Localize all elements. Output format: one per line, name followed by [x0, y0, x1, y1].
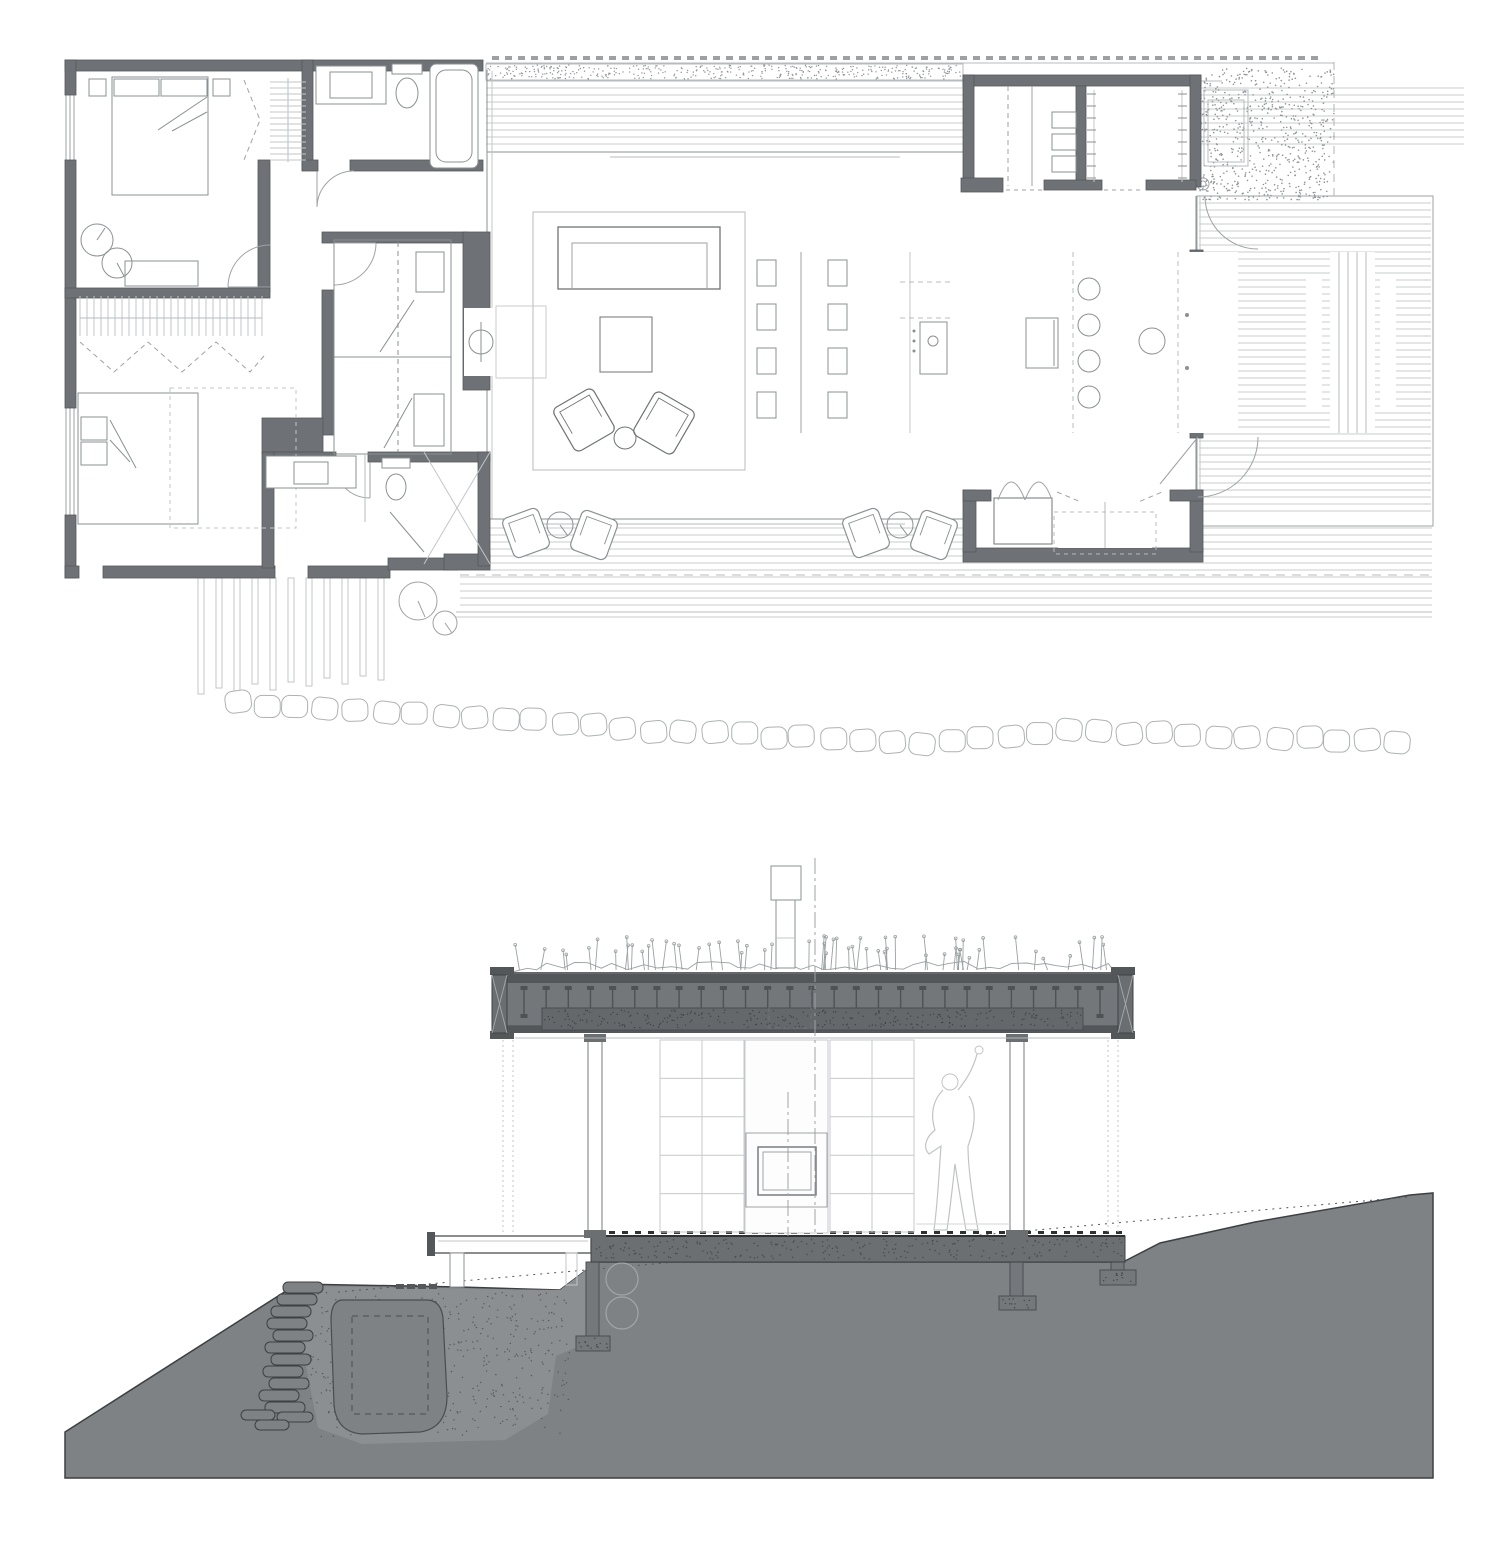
- insulation-hatch: [558, 1011, 559, 1012]
- slab-hatch: [932, 1240, 934, 1242]
- backfill-dots: [512, 1316, 513, 1317]
- gravel-dots: [1313, 105, 1315, 107]
- gravel-dots: [1287, 138, 1289, 140]
- slab-ticks: [947, 1231, 953, 1234]
- stone: [1205, 726, 1233, 750]
- slab-hatch: [837, 1251, 839, 1253]
- gravel-dots: [615, 72, 616, 73]
- insulation-hatch: [1034, 1017, 1035, 1018]
- gravel-dots: [1267, 194, 1269, 196]
- armchair: [552, 387, 617, 453]
- roof-edge-ticks: [596, 56, 603, 60]
- gravel-dots: [944, 71, 945, 72]
- slab-hatch: [884, 1248, 886, 1250]
- insulation-hatch: [691, 1020, 692, 1021]
- gravel-dots: [1258, 105, 1260, 107]
- stone: [939, 730, 965, 752]
- gravel-dots: [1280, 80, 1282, 82]
- gravel-dots: [574, 73, 575, 74]
- slab-hatch: [1079, 1239, 1081, 1241]
- backfill-dots: [561, 1326, 562, 1327]
- gravel-dots: [696, 66, 697, 67]
- boardwalk: [378, 578, 384, 680]
- gravel-dots: [1251, 124, 1253, 126]
- gravel-dots: [796, 68, 797, 69]
- gravel-dots: [497, 66, 498, 67]
- insulation-hatch: [965, 1015, 966, 1016]
- insulation-hatch: [1061, 1010, 1062, 1011]
- insulation-hatch: [895, 1016, 896, 1017]
- gravel-dots: [645, 65, 646, 66]
- wing-interior: [76, 71, 480, 568]
- gravel-dots: [874, 65, 875, 66]
- slab-hatch: [648, 1256, 650, 1258]
- gravel-dots: [1308, 140, 1310, 142]
- backfill-dots: [475, 1402, 476, 1403]
- backfill-dots: [503, 1394, 504, 1395]
- footing-dots: [1105, 1277, 1106, 1278]
- slab-ticks: [648, 1231, 654, 1234]
- gravel-dots: [634, 78, 635, 79]
- gravel-dots: [1224, 72, 1226, 74]
- slab-ticks: [973, 1231, 979, 1234]
- gravel-dots: [535, 76, 536, 77]
- sofa: [558, 227, 720, 289]
- plant-stem: [541, 949, 545, 970]
- gravel-dots: [751, 65, 752, 66]
- plant-stem: [983, 938, 986, 970]
- insulation-hatch: [1080, 1015, 1081, 1016]
- slab-hatch: [943, 1245, 945, 1247]
- footing-dots: [1014, 1307, 1015, 1308]
- gravel-dots: [696, 70, 697, 71]
- gravel-dots: [1255, 99, 1257, 101]
- slab-hatch: [596, 1248, 598, 1250]
- insulation-hatch: [878, 1010, 879, 1011]
- gravel-dots: [703, 70, 704, 71]
- gravel-dots: [787, 75, 788, 76]
- insulation-hatch: [822, 1011, 823, 1012]
- plant-stem: [963, 940, 964, 970]
- gravel-dots: [763, 64, 764, 65]
- gravel-dots: [811, 77, 812, 78]
- gravel-dots: [544, 67, 545, 68]
- backfill-dots: [516, 1377, 517, 1378]
- slab-hatch: [686, 1247, 688, 1249]
- gravel-dots: [923, 74, 924, 75]
- gravel-dots: [949, 68, 950, 69]
- backfill-dots: [326, 1292, 327, 1293]
- slab-hatch: [717, 1251, 719, 1253]
- gravel-dots: [1286, 116, 1288, 118]
- slab-hatch: [670, 1257, 672, 1259]
- insulation-hatch: [650, 1024, 651, 1025]
- backfill-dots: [438, 1293, 439, 1294]
- gravel-dots: [1240, 83, 1242, 85]
- backfill-dots: [531, 1360, 532, 1361]
- insulation-hatch: [897, 1019, 898, 1020]
- backfill-dots: [483, 1303, 484, 1304]
- slab-hatch: [660, 1241, 662, 1243]
- insulation-hatch: [657, 1013, 658, 1014]
- gravel-dots: [902, 73, 903, 74]
- gravel-dots: [1255, 142, 1257, 144]
- gravel-dots: [861, 75, 862, 76]
- backfill-dots: [452, 1403, 453, 1404]
- kitchen-island: [1021, 252, 1081, 433]
- gravel-dots: [1309, 147, 1311, 149]
- gravel-dots: [1206, 190, 1208, 192]
- gravel-dots: [721, 71, 722, 72]
- insulation-hatch: [743, 1024, 744, 1025]
- slab-hatch: [611, 1246, 613, 1248]
- gravel-dots: [605, 75, 606, 76]
- gravel-dots: [1278, 100, 1280, 102]
- gravel-dots: [1318, 164, 1320, 166]
- joist-plate: [521, 986, 528, 990]
- gravel-dots: [1299, 158, 1301, 160]
- backfill-dots: [510, 1343, 511, 1344]
- insulation-hatch: [799, 1025, 800, 1026]
- slab-hatch: [1022, 1247, 1024, 1249]
- stone: [224, 689, 253, 714]
- slab-ticks: [622, 1231, 628, 1234]
- insulation-hatch: [586, 1020, 587, 1021]
- slab-hatch: [989, 1257, 991, 1259]
- gravel-dots: [886, 74, 887, 75]
- plant-stem: [738, 941, 741, 970]
- backfill-dots: [475, 1298, 476, 1299]
- gravel-dots: [837, 72, 838, 73]
- backfill-dots: [355, 1296, 356, 1297]
- gravel-dots: [1276, 176, 1278, 178]
- gravel-dots: [847, 72, 848, 73]
- gravel-dots: [1257, 70, 1259, 72]
- gravel-dots: [557, 72, 558, 73]
- footing-dots: [1028, 1300, 1029, 1301]
- gravel-dots: [1321, 140, 1323, 142]
- stone: [1233, 725, 1261, 750]
- stone: [1353, 727, 1381, 752]
- insulation-hatch: [1025, 1012, 1026, 1013]
- insulation-hatch: [639, 1027, 640, 1028]
- slab-hatch: [949, 1249, 951, 1251]
- gravel-dots: [648, 66, 649, 67]
- dining-chair: [828, 348, 847, 374]
- gravel-dots: [690, 76, 691, 77]
- gravel-dots: [1216, 98, 1218, 100]
- footing-dots: [1116, 1273, 1117, 1274]
- gravel-dots: [1293, 105, 1295, 107]
- slab-hatch: [763, 1256, 765, 1258]
- backfill-dots: [547, 1394, 548, 1395]
- gravel-dots: [1262, 118, 1264, 120]
- gravel-dots: [1245, 172, 1247, 174]
- stone: [878, 730, 906, 754]
- gravel-dots: [1288, 159, 1290, 161]
- plant-stem: [943, 954, 945, 970]
- dining-chair: [757, 304, 776, 330]
- insulation-hatch: [922, 1021, 923, 1022]
- gravel-dots: [1227, 190, 1229, 192]
- backfill-dots: [482, 1307, 483, 1308]
- backfill-dots: [538, 1345, 539, 1346]
- insulation-hatch: [674, 1011, 675, 1012]
- slab-hatch: [657, 1245, 659, 1247]
- gravel-dots: [1263, 158, 1265, 160]
- slab-hatch: [611, 1257, 613, 1259]
- backfill-dots: [508, 1359, 509, 1360]
- gravel-dots: [739, 66, 740, 67]
- gravel-dots: [1319, 122, 1321, 124]
- gravel-dots: [526, 68, 527, 69]
- gravel-dots: [730, 65, 731, 66]
- gravel-dots: [1267, 180, 1269, 182]
- gravel-dots: [1329, 87, 1331, 89]
- stone: [342, 699, 369, 722]
- gravel-dots: [1304, 183, 1306, 185]
- insulation-hatch: [583, 1013, 584, 1014]
- stem-wall: [1111, 1262, 1124, 1270]
- slab-hatch: [886, 1241, 888, 1243]
- plant-stem: [663, 941, 667, 970]
- gravel-dots: [1226, 188, 1228, 190]
- gravel-dots: [1317, 75, 1319, 77]
- backfill-dots: [506, 1419, 507, 1420]
- slab-hatch: [811, 1250, 813, 1252]
- gravel-dots: [1243, 92, 1245, 94]
- gravel-dots: [1290, 172, 1292, 174]
- gravel-dots: [955, 72, 956, 73]
- gravel-dots: [532, 66, 533, 67]
- gravel-dots: [1247, 180, 1249, 182]
- gravel-dots: [771, 69, 772, 70]
- gravel-dots: [1295, 132, 1297, 134]
- gravel-dots: [1231, 97, 1233, 99]
- roof-edge-ticks: [778, 56, 785, 60]
- plant-stem: [589, 948, 591, 970]
- insulation-hatch: [685, 1024, 686, 1025]
- gravel-dots: [1234, 192, 1236, 194]
- backfill-dots: [517, 1355, 518, 1356]
- joist-plate: [875, 986, 882, 990]
- insulation-hatch: [580, 1019, 581, 1020]
- slab-hatch: [822, 1241, 824, 1243]
- gravel-dots: [1242, 129, 1244, 131]
- slab-hatch: [750, 1256, 752, 1258]
- backfill-dots: [492, 1389, 493, 1390]
- figure-head: [942, 1074, 958, 1090]
- backfill-dots: [461, 1341, 462, 1342]
- roof-edge-ticks: [895, 56, 902, 60]
- gravel-dots: [1248, 71, 1250, 73]
- slab-hatch: [895, 1244, 897, 1246]
- backfill-dots: [472, 1322, 473, 1323]
- gravel-dots: [551, 66, 552, 67]
- slab-hatch: [717, 1257, 719, 1259]
- insulation-hatch: [1061, 1013, 1062, 1014]
- gravel-dots: [1259, 171, 1261, 173]
- insulation-hatch: [669, 1016, 670, 1017]
- gravel-dots: [597, 76, 598, 77]
- gravel-dots: [1221, 154, 1223, 156]
- gravel-dots: [1331, 88, 1333, 90]
- gravel-dots: [826, 77, 827, 78]
- joist-plate: [941, 986, 948, 990]
- gravel-dots: [1287, 175, 1289, 177]
- backfill-dots: [557, 1396, 558, 1397]
- floor-slab: [591, 1236, 1125, 1262]
- gravel-dots: [1305, 135, 1307, 137]
- gravel-dots: [1283, 127, 1285, 129]
- gravel-dots: [1241, 77, 1243, 79]
- backfill-dots: [487, 1296, 488, 1297]
- insulation-hatch: [755, 1024, 756, 1025]
- bar-stool: [1078, 386, 1100, 408]
- backfill-dots: [448, 1392, 449, 1393]
- gravel-dots: [1323, 119, 1325, 121]
- gravel-dots: [1214, 114, 1216, 116]
- backfill-dots: [477, 1340, 478, 1341]
- gravel-dots: [549, 68, 550, 69]
- insulation-hatch: [610, 1014, 611, 1015]
- gravel-dots: [1252, 75, 1254, 77]
- backfill-dots: [322, 1312, 323, 1313]
- gravel-dots: [1298, 157, 1300, 159]
- gravel-dots: [1309, 178, 1311, 180]
- dining-chair: [757, 392, 776, 418]
- gravel-dots: [1238, 94, 1240, 96]
- gravel-dots: [1300, 196, 1302, 198]
- backfill-dots: [329, 1390, 330, 1391]
- joist-plate: [720, 986, 727, 990]
- gravel-dots: [892, 68, 893, 69]
- insulation-hatch: [618, 1022, 619, 1023]
- gravel-dots: [748, 71, 749, 72]
- insulation-hatch: [565, 1011, 566, 1012]
- gravel-dots: [805, 66, 806, 67]
- insulation-hatch: [759, 1012, 760, 1013]
- gravel-dots: [1237, 181, 1239, 183]
- footing-dots: [1012, 1298, 1013, 1299]
- footing-dots: [1009, 1299, 1010, 1300]
- gravel-dots: [1282, 98, 1284, 100]
- backfill-dots: [517, 1401, 518, 1402]
- roof-edge-ticks: [1103, 56, 1110, 60]
- stone: [281, 695, 308, 718]
- insulation-hatch: [724, 1009, 725, 1010]
- gravel-dots: [1246, 74, 1248, 76]
- gravel-dots: [1312, 150, 1314, 152]
- gravel-dots: [1274, 189, 1276, 191]
- slab-hatch: [1113, 1242, 1115, 1244]
- slab-hatch: [929, 1249, 931, 1251]
- gravel-dots: [852, 66, 853, 67]
- gravel-dots: [854, 76, 855, 77]
- floor-plan: [65, 56, 1464, 757]
- joist-plate: [676, 986, 683, 990]
- gravel-dots: [1295, 115, 1297, 117]
- earthwork: [65, 1193, 1433, 1478]
- gravel-dots: [542, 74, 543, 75]
- insulation-hatch: [774, 1023, 775, 1024]
- gravel-dots: [639, 77, 640, 78]
- gravel-dots: [905, 69, 906, 70]
- gravel-dots: [1215, 88, 1217, 90]
- gravel-dots: [541, 66, 542, 67]
- gravel-dots: [788, 71, 789, 72]
- plant-stem: [849, 948, 850, 970]
- slab-hatch: [710, 1251, 712, 1253]
- gravel-dots: [644, 73, 645, 74]
- slab-hatch: [653, 1246, 655, 1248]
- gravel-dots: [1257, 199, 1259, 201]
- insulation-hatch: [862, 1016, 863, 1017]
- slab-hatch: [699, 1242, 701, 1244]
- gravel-dots: [1234, 181, 1236, 183]
- stone: [372, 700, 401, 725]
- gravel-dots: [554, 78, 555, 79]
- backfill-dots: [502, 1385, 503, 1386]
- backfill-dots: [525, 1354, 526, 1355]
- gravel-dots: [1283, 190, 1285, 192]
- gravel-dots: [1265, 98, 1267, 100]
- gravel-dots: [1251, 175, 1253, 177]
- backfill-dots: [457, 1349, 458, 1350]
- gravel-dots: [1237, 127, 1239, 129]
- gravel-dots: [942, 69, 943, 70]
- backfill-dots: [486, 1321, 487, 1322]
- gravel-dots: [836, 69, 837, 70]
- insulation-hatch: [990, 1010, 991, 1011]
- gravel-dots: [588, 67, 589, 68]
- gravel-dots: [1294, 171, 1296, 173]
- gravel-dots: [1322, 144, 1324, 146]
- gravel-dots: [519, 73, 520, 74]
- insulation-hatch: [777, 1017, 778, 1018]
- gravel-dots: [1253, 163, 1255, 165]
- stacked-stone: [271, 1306, 311, 1317]
- gravel-dots: [1303, 100, 1305, 102]
- sink: [330, 72, 372, 98]
- gravel-dots: [814, 75, 815, 76]
- gravel-dots: [643, 65, 644, 66]
- gravel-dots: [605, 74, 606, 75]
- gravel-dots: [718, 78, 719, 79]
- slab-hatch: [1100, 1249, 1102, 1251]
- gravel-dots: [836, 71, 837, 72]
- sideboard: [464, 308, 526, 376]
- gravel-dots: [842, 71, 843, 72]
- gravel-dots: [1327, 90, 1329, 92]
- plant-stem: [852, 947, 855, 970]
- backfill-dots: [565, 1302, 566, 1303]
- backfill-dots: [519, 1388, 520, 1389]
- insulation-hatch: [872, 1024, 873, 1025]
- gravel-dots: [1229, 98, 1231, 100]
- slab-hatch: [1002, 1242, 1004, 1244]
- stacked-stone: [267, 1318, 307, 1329]
- slab-hatch: [1117, 1253, 1119, 1255]
- insulation-hatch: [1030, 1024, 1031, 1025]
- gravel-dots: [1237, 110, 1239, 112]
- lounge-chair: [909, 509, 959, 561]
- gravel-dots: [1262, 105, 1264, 107]
- gravel-dots: [897, 77, 898, 78]
- insulation-hatch: [645, 1019, 646, 1020]
- backfill-dots: [542, 1387, 543, 1388]
- gravel-dots: [673, 75, 674, 76]
